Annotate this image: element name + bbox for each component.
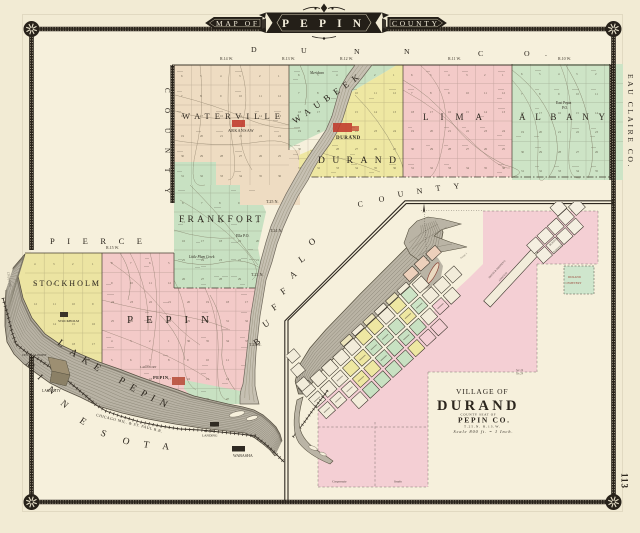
svg-text:33: 33 [220,174,224,178]
svg-text:28: 28 [220,154,224,158]
svg-text:17: 17 [92,342,96,346]
svg-text:20: 20 [187,300,191,304]
svg-text:26: 26 [484,147,488,151]
svg-text:11: 11 [595,92,598,96]
svg-text:113: 113 [620,473,630,489]
svg-text:27: 27 [226,397,230,401]
svg-text:19: 19 [181,134,185,138]
svg-text:N: N [163,148,171,153]
svg-text:30: 30 [298,147,302,151]
svg-text:T.25.N. R.13.W.: T.25.N. R.13.W. [464,425,500,429]
svg-text:DURAND: DURAND [336,136,361,141]
svg-text:14: 14 [374,110,378,114]
svg-text:33: 33 [558,169,562,173]
svg-text:24: 24 [502,129,506,133]
svg-text:O: O [524,49,530,58]
svg-text:16: 16 [182,239,186,243]
svg-text:DURAND: DURAND [568,275,582,279]
svg-text:T.23 N.: T.23 N. [251,272,264,277]
svg-text:22: 22 [576,130,580,134]
svg-text:LIMA: LIMA [423,112,487,122]
svg-text:Ella P.O.: Ella P.O. [236,234,249,238]
svg-text:29: 29 [200,154,204,158]
svg-text:30: 30 [411,147,415,151]
svg-text:26: 26 [595,150,599,154]
svg-text:20: 20 [200,134,204,138]
svg-text:31: 31 [411,166,415,170]
svg-text:10: 10 [576,92,580,96]
svg-text:25: 25 [111,319,115,323]
svg-text:32: 32 [200,174,204,178]
svg-text:35: 35 [259,174,263,178]
svg-text:28: 28 [448,147,452,151]
svg-text:23: 23 [374,129,378,133]
svg-text:R.12 W.: R.12 W. [340,56,353,61]
svg-text:19: 19 [411,129,415,133]
svg-text:20: 20 [256,239,260,243]
svg-text:36: 36 [187,339,191,343]
svg-text:20: 20 [317,129,321,133]
svg-text:10: 10 [72,302,76,306]
svg-text:R.14 W.: R.14 W. [220,56,233,61]
svg-text:O: O [163,108,171,113]
svg-text:27: 27 [355,147,359,151]
svg-text:VILLAGE OF: VILLAGE OF [456,387,510,396]
svg-text:R.13 W.: R.13 W. [282,56,295,61]
svg-text:C: C [163,88,171,93]
svg-text:T: T [163,168,171,173]
svg-text:T.23 N.: T.23 N. [249,342,262,347]
svg-text:12: 12 [393,91,397,95]
svg-text:21: 21 [558,130,562,134]
svg-text:10: 10 [355,91,359,95]
svg-text:27: 27 [201,277,205,281]
svg-text:23: 23 [219,258,223,262]
svg-text:T.24 N.: T.24 N. [270,228,283,233]
svg-text:10: 10 [239,94,243,98]
svg-text:Y: Y [163,188,171,193]
svg-text:Meridean: Meridean [309,71,324,75]
svg-text:C: C [478,49,483,58]
svg-text:28: 28 [558,150,562,154]
svg-text:26: 26 [182,277,186,281]
svg-text:17: 17 [168,377,172,381]
svg-text:32: 32 [430,166,434,170]
svg-text:Little Plum Creek: Little Plum Creek [188,255,215,259]
svg-text:D: D [251,45,257,54]
svg-text:11: 11 [374,91,377,95]
svg-text:LANDING: LANDING [202,434,218,438]
svg-text:WATERVILLE: WATERVILLE [182,111,282,121]
svg-text:U: U [301,46,307,55]
svg-text:31: 31 [181,174,185,178]
svg-text:27: 27 [466,147,470,151]
svg-text:11: 11 [53,302,56,306]
svg-text:Corporate: Corporate [332,480,347,484]
svg-text:36: 36 [393,166,397,170]
svg-text:30: 30 [521,150,525,154]
svg-text:29: 29 [539,150,543,154]
svg-text:limits: limits [394,480,402,484]
svg-text:20: 20 [430,129,434,133]
svg-text:12: 12 [168,281,172,285]
svg-text:12: 12 [34,302,38,306]
svg-text:CEMETERY: CEMETERY [566,281,583,285]
svg-text:23: 23 [259,134,263,138]
svg-text:22: 22 [466,129,470,133]
svg-text:29: 29 [238,277,242,281]
svg-text:22: 22 [238,258,242,262]
svg-text:25: 25 [502,147,506,151]
svg-text:25: 25 [278,154,282,158]
svg-text:24: 24 [111,300,115,304]
svg-text:10: 10 [466,91,470,95]
svg-text:30: 30 [181,154,185,158]
svg-text:STOCKHOLM: STOCKHOLM [33,279,100,288]
svg-text:23: 23 [130,300,134,304]
svg-text:13: 13 [502,110,506,114]
svg-text:R.11 W.: R.11 W. [448,56,461,61]
svg-text:32: 32 [317,166,321,170]
svg-text:34: 34 [576,169,580,173]
svg-text:13: 13 [393,110,397,114]
svg-text:26: 26 [374,147,378,151]
svg-text:33: 33 [448,166,452,170]
svg-text:11: 11 [259,94,262,98]
svg-text:35: 35 [374,166,378,170]
svg-text:11: 11 [149,281,152,285]
svg-text:18: 18 [226,300,230,304]
svg-text:21: 21 [168,300,172,304]
svg-text:11: 11 [226,358,229,362]
svg-text:Scale 800 ft. = 1 Inch.: Scale 800 ft. = 1 Inch. [454,429,513,434]
svg-text:24: 24 [393,129,397,133]
svg-text:T.25 N.: T.25 N. [266,199,279,204]
svg-text:28: 28 [219,277,223,281]
svg-text:N: N [354,47,360,56]
svg-text:35: 35 [206,339,210,343]
svg-text:36: 36 [278,174,282,178]
svg-text:PEPIN: PEPIN [153,375,169,380]
svg-text:11: 11 [484,91,487,95]
svg-text:31: 31 [226,319,230,323]
svg-text:21: 21 [220,134,224,138]
svg-text:East Pepin: East Pepin [556,101,571,105]
svg-text:32: 32 [539,169,543,173]
svg-text:12: 12 [502,91,506,95]
svg-text:12: 12 [278,94,282,98]
svg-text:U: U [163,128,171,133]
svg-text:Sec.24: Sec.24 [516,373,524,376]
svg-text:34: 34 [466,166,470,170]
svg-text:18: 18 [219,239,223,243]
svg-text:21: 21 [448,129,452,133]
svg-text:16: 16 [448,110,452,114]
svg-text:14: 14 [53,322,57,326]
svg-text:A: A [162,442,170,453]
svg-text:ARKANSAW: ARKANSAW [228,128,254,133]
svg-text:35: 35 [484,166,488,170]
svg-text:10: 10 [130,281,134,285]
svg-text:25: 25 [182,258,186,262]
svg-text:23: 23 [595,130,599,134]
svg-text:16: 16 [92,322,96,326]
svg-text:27: 27 [576,150,580,154]
svg-text:FRANKFORT: FRANKFORT [179,215,263,225]
svg-text:27: 27 [239,154,243,158]
svg-text:EAU CLAIRE CO.: EAU CLAIRE CO. [626,74,635,169]
svg-text:LAKE CITY: LAKE CITY [42,389,61,393]
svg-text:15: 15 [355,110,359,114]
svg-text:23: 23 [484,129,488,133]
svg-text:LAKEPORT: LAKEPORT [140,365,157,369]
svg-text:PEPIN CO.: PEPIN CO. [458,416,510,425]
svg-text:19: 19 [521,130,525,134]
svg-text:33: 33 [336,166,340,170]
svg-text:20: 20 [539,130,543,134]
svg-text:READS: READS [204,429,215,433]
svg-text:35: 35 [595,169,599,173]
svg-text:P.O.: P.O. [562,106,568,110]
svg-text:STOCKHOLM: STOCKHOLM [58,319,79,323]
svg-text:28: 28 [336,147,340,151]
svg-text:34: 34 [355,166,359,170]
svg-text:R.10 W.: R.10 W. [558,56,571,61]
svg-text:31: 31 [521,169,525,173]
svg-text:N: N [404,47,410,56]
svg-text:R.15 W.: R.15 W. [106,245,119,250]
svg-text:34: 34 [226,339,230,343]
svg-text:34: 34 [239,174,243,178]
svg-text:17: 17 [245,300,249,304]
svg-text:19: 19 [298,129,302,133]
svg-text:18: 18 [411,110,415,114]
svg-text:32: 32 [245,319,249,323]
svg-text:29: 29 [430,147,434,151]
svg-text:.: . [545,49,547,58]
svg-text:WABASHA: WABASHA [233,453,253,458]
svg-text:24: 24 [278,134,282,138]
svg-text:26: 26 [259,154,263,158]
svg-text:21: 21 [256,258,260,262]
svg-text:CENTRAL POINT: CENTRAL POINT [22,353,47,357]
svg-text:19: 19 [206,300,210,304]
svg-text:17: 17 [201,239,205,243]
svg-text:22: 22 [149,300,153,304]
svg-text:10: 10 [206,358,210,362]
